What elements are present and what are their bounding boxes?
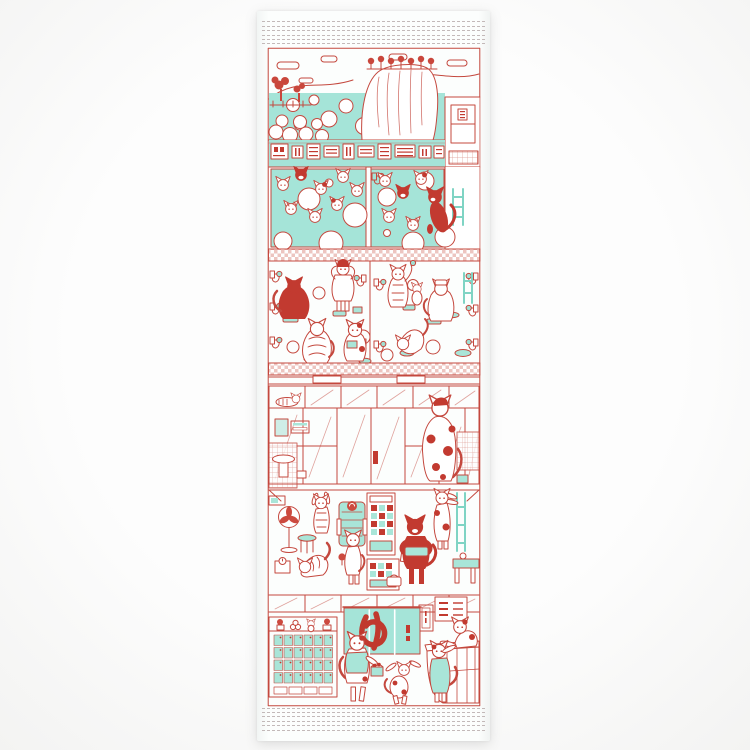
vent-cover — [397, 376, 425, 383]
sink-basin — [273, 455, 295, 463]
woven-hem-top — [262, 18, 485, 48]
tenugui-towel: White tenugui hand towel printed in red … — [257, 11, 490, 741]
red-cat-akimbo — [400, 515, 436, 584]
stitch-line — [262, 35, 485, 36]
stitch-line — [262, 716, 485, 717]
red-cat-at-wall — [274, 277, 310, 319]
bucket — [457, 475, 468, 483]
open-cubbies — [274, 687, 332, 694]
waist-towel — [405, 547, 428, 556]
shelf-ornaments — [277, 619, 331, 632]
floating-basin — [384, 230, 391, 237]
rock-cliff — [362, 56, 438, 140]
locker-doors — [274, 635, 333, 683]
stitch-line — [262, 26, 485, 27]
round-stool — [298, 535, 316, 553]
stretching-tiger-cat — [311, 492, 331, 533]
pool-divider-wall — [366, 167, 371, 247]
right-wall-window — [445, 97, 480, 167]
pillar-sign — [373, 451, 378, 464]
bending-cat — [395, 319, 427, 354]
shoe-lockers — [269, 617, 337, 697]
stitch-line — [262, 708, 485, 709]
photo-background: White tenugui hand towel printed in red … — [0, 0, 750, 750]
stitch-line — [262, 39, 485, 40]
vent-grille — [449, 151, 478, 164]
weighing-scale — [275, 558, 290, 574]
tiger-cat-back — [303, 318, 334, 363]
stitch-line — [262, 712, 485, 713]
framed-wall-sign — [419, 605, 433, 631]
vent-cover — [313, 376, 341, 383]
stitch-line — [262, 730, 485, 731]
cat-with-head-towel — [424, 279, 454, 321]
pool-edge-tiles — [269, 249, 480, 261]
cat-washing-head — [331, 259, 362, 313]
mirror — [275, 419, 288, 436]
drink-vending-machine — [367, 493, 395, 555]
stitch-line — [262, 721, 485, 722]
bucket — [297, 471, 306, 478]
indoor-bath-scene: indoor pools with soaking cats — [269, 166, 480, 261]
sleeping-cat-on-ledge — [276, 393, 301, 407]
changing-room-scene: changing room with fan and vending machi… — [269, 488, 479, 595]
clothes-basket — [387, 575, 401, 586]
entrance-scene: entrance with shoe lockers, noren curtai… — [269, 595, 479, 704]
noren-side-marks — [406, 625, 410, 641]
kitten-running — [385, 660, 422, 705]
calico-cat-stretching — [434, 488, 465, 551]
glass-partition-scene: glass partition and vanity — [269, 376, 479, 490]
bench — [453, 553, 479, 583]
electric-fan — [278, 507, 299, 553]
walkway-tiles — [269, 363, 480, 375]
bending-tiger-cat — [297, 543, 329, 577]
calico-cat-with-bucket — [344, 319, 366, 361]
tiger-cat-with-shower — [388, 260, 423, 307]
price-board — [435, 597, 467, 621]
washing-area-scene: washing stations with cats on stools — [269, 259, 480, 375]
stitch-line — [262, 725, 485, 726]
parent-cat-shirt — [346, 652, 369, 673]
towel-shelf — [291, 421, 309, 433]
stitch-line — [262, 21, 485, 22]
stitch-line — [262, 43, 485, 44]
woven-hem-bottom — [262, 704, 485, 734]
stitch-line — [262, 30, 485, 31]
bathhouse-illustration: White tenugui hand towel printed in red … — [267, 47, 481, 707]
